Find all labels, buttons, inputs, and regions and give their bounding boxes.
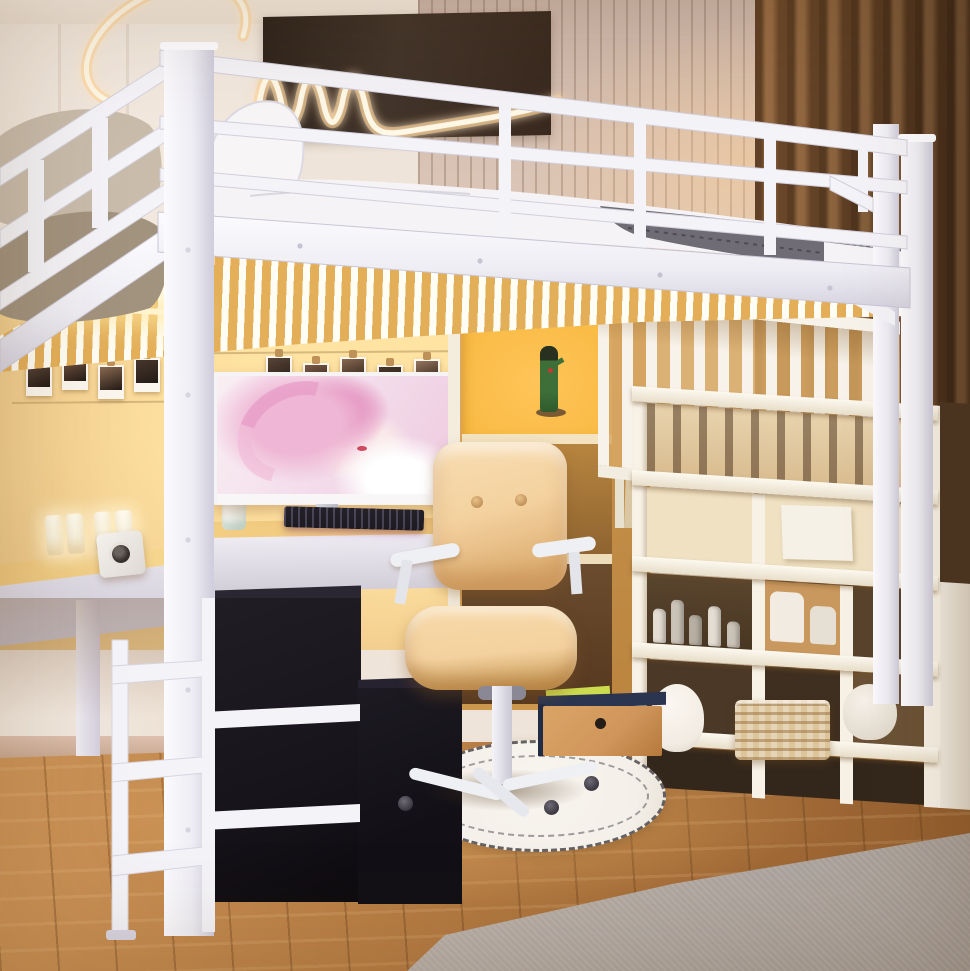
ladder-foot	[106, 930, 136, 940]
ladder-rail	[112, 640, 128, 938]
post-cap	[160, 42, 218, 50]
frame-upright	[202, 598, 215, 932]
frame-rail	[204, 704, 360, 729]
head-spindle	[28, 160, 44, 272]
rail-spindle	[634, 122, 646, 249]
corner-posts	[873, 124, 936, 706]
loft-bed	[0, 0, 970, 971]
bed-right-post	[901, 138, 933, 706]
frame-rail	[204, 804, 360, 830]
rail-spindle	[764, 137, 776, 255]
bedroom-photo	[0, 0, 970, 971]
storage-frame	[202, 598, 360, 932]
head-spindle	[92, 118, 108, 228]
rail-spindle	[499, 105, 511, 239]
bed-corner-post	[873, 124, 899, 704]
